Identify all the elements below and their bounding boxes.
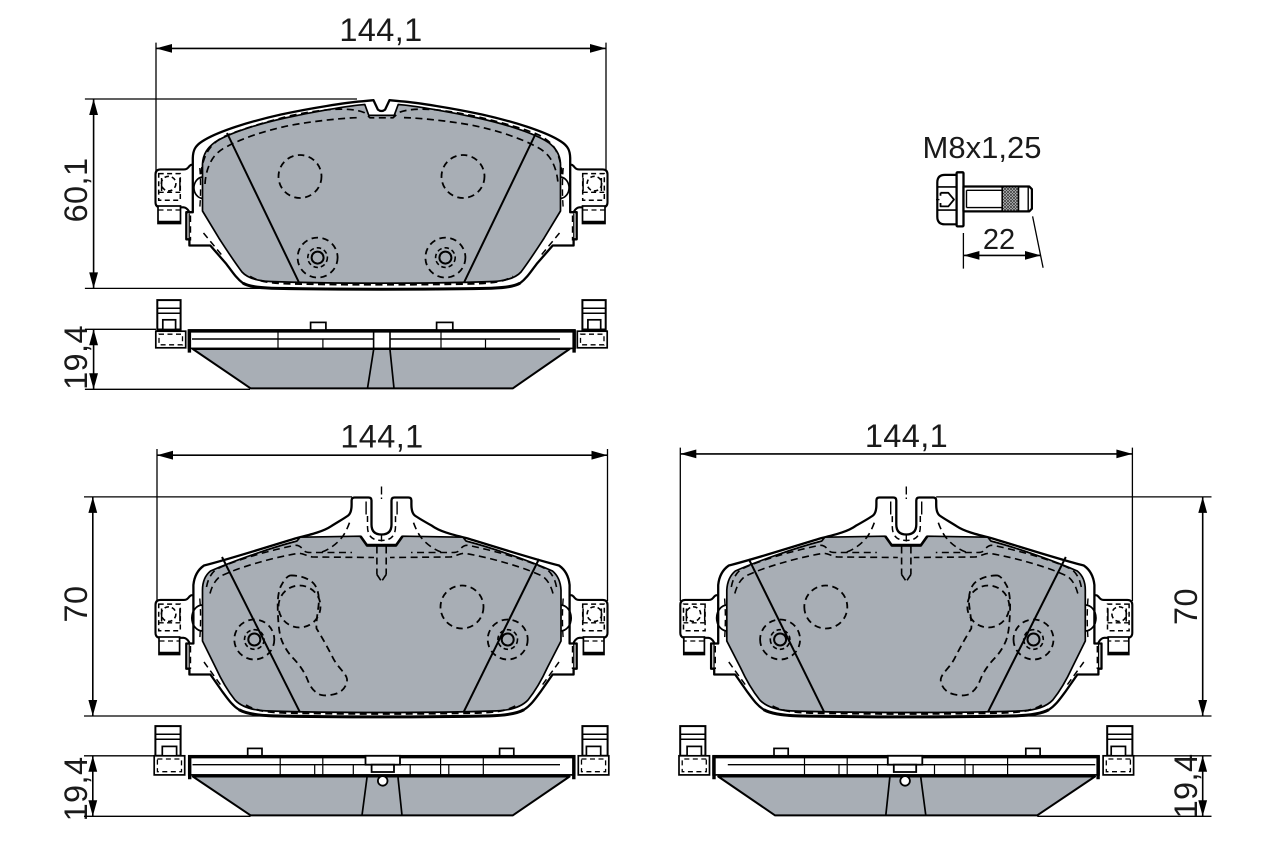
svg-text:144,1: 144,1 — [340, 419, 423, 455]
svg-text:70: 70 — [58, 586, 94, 623]
svg-text:144,1: 144,1 — [865, 418, 948, 454]
svg-text:22: 22 — [983, 224, 1015, 256]
svg-text:M8x1,25: M8x1,25 — [923, 130, 1042, 165]
svg-text:19,4: 19,4 — [58, 325, 94, 390]
svg-text:60,1: 60,1 — [58, 158, 94, 223]
svg-text:70: 70 — [1168, 588, 1204, 625]
svg-text:144,1: 144,1 — [339, 12, 422, 48]
svg-text:19,4: 19,4 — [58, 757, 94, 822]
svg-text:19,4: 19,4 — [1168, 754, 1204, 819]
